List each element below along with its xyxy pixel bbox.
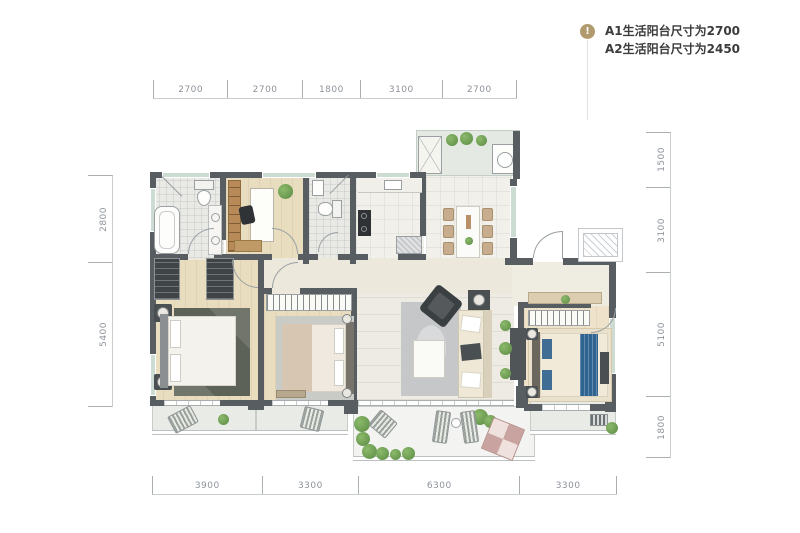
legend-line-2: A2生活阳台尺寸为2450 xyxy=(605,40,740,58)
lamp xyxy=(527,387,537,397)
sofa-pillow xyxy=(460,343,482,361)
sofa-back xyxy=(484,310,492,398)
dimension-segment: 1800 xyxy=(303,80,361,98)
floorplan-page: 27002700180031002700 3900330063003300 28… xyxy=(0,0,800,533)
window xyxy=(510,186,517,238)
dimension-label: 2700 xyxy=(178,86,203,98)
bed xyxy=(160,314,244,388)
dimension-chain-right: 1500310051001800 xyxy=(646,132,671,458)
shrub xyxy=(402,447,415,460)
bed-bench xyxy=(276,390,306,398)
shrub xyxy=(376,447,389,460)
plant xyxy=(476,135,487,146)
bed-runner xyxy=(580,334,598,396)
dimension-label: 3100 xyxy=(389,86,414,98)
dimension-chain-left: 28005400 xyxy=(88,175,113,407)
bed xyxy=(532,332,608,398)
kitchen-counter xyxy=(358,178,422,193)
dimension-segment: 6300 xyxy=(359,476,520,494)
stairwell xyxy=(578,228,623,262)
sink xyxy=(312,180,324,196)
wall-segment xyxy=(303,178,309,264)
dimension-label: 1500 xyxy=(658,147,667,172)
wall-segment xyxy=(513,131,520,179)
dining-chair xyxy=(443,242,454,255)
dresser xyxy=(600,352,609,384)
sofa-pillow xyxy=(460,371,481,389)
dimension-segment: 3100 xyxy=(646,188,670,274)
legend-line-1: A1生活阳台尺寸为2700 xyxy=(605,22,740,40)
dimension-label: 3100 xyxy=(658,218,667,243)
dining-chair xyxy=(482,242,493,255)
kitchen-sink xyxy=(384,180,402,190)
armchair-cushion xyxy=(427,292,455,320)
bathtub-inner xyxy=(159,211,175,249)
balcony-railing xyxy=(256,430,348,435)
dimension-segment: 2700 xyxy=(154,80,228,98)
entry-door-leaf xyxy=(562,231,563,259)
dimension-label: 3300 xyxy=(298,482,323,494)
lamp xyxy=(527,329,537,339)
dining-chair xyxy=(443,225,454,238)
balcony-slider-door xyxy=(542,404,590,411)
blanket xyxy=(282,324,312,392)
bathtub xyxy=(154,206,180,254)
hall-cabinet xyxy=(528,292,602,304)
plant xyxy=(460,132,473,145)
wardrobe xyxy=(528,310,590,326)
pillow xyxy=(170,354,181,382)
wall-pillar xyxy=(344,400,358,414)
burner xyxy=(361,226,367,232)
pillow-blue xyxy=(542,370,552,390)
wall-segment xyxy=(398,254,426,260)
fridge xyxy=(396,236,422,254)
dimension-label: 2800 xyxy=(100,207,109,232)
dimension-segment: 1500 xyxy=(646,133,670,188)
pillow xyxy=(170,320,181,348)
dimension-segment: 3100 xyxy=(361,80,443,98)
dimension-label: 1800 xyxy=(319,86,344,98)
plant xyxy=(499,342,512,355)
floor-plan xyxy=(150,128,623,464)
dimension-segment: 2800 xyxy=(88,176,112,263)
shrub xyxy=(390,449,401,460)
dimension-label: 1800 xyxy=(658,415,667,440)
plant xyxy=(446,134,458,146)
table-runner xyxy=(466,215,471,229)
burner xyxy=(361,213,367,219)
dimension-chain-bottom: 3900330063003300 xyxy=(152,476,617,495)
shrub xyxy=(362,444,377,459)
lamp xyxy=(342,388,352,398)
dimension-label: 5100 xyxy=(658,322,667,347)
dimension-segment: 3900 xyxy=(153,476,263,494)
dimension-segment: 3300 xyxy=(520,476,617,494)
pillow xyxy=(334,328,344,354)
dining-chair xyxy=(443,208,454,221)
dimension-label: 2700 xyxy=(467,86,492,98)
plant xyxy=(606,422,618,434)
washing-machine-drum xyxy=(497,152,513,168)
wall-segment xyxy=(298,254,318,260)
lamp xyxy=(342,314,352,324)
coffee-table xyxy=(413,340,445,378)
ac-unit xyxy=(590,414,608,426)
window xyxy=(162,172,210,178)
wall-segment xyxy=(338,254,368,260)
stairwell-hatch xyxy=(583,233,618,257)
pillow xyxy=(334,360,344,386)
balcony-cabinet xyxy=(418,136,442,174)
dimension-label: 6300 xyxy=(427,482,452,494)
wardrobe xyxy=(154,258,180,300)
dimension-segment: 5100 xyxy=(646,273,670,397)
plant xyxy=(500,320,511,331)
balcony-slider-door xyxy=(272,400,328,406)
plant xyxy=(218,414,229,425)
toilet-bowl xyxy=(318,202,333,216)
headboard xyxy=(346,322,354,394)
toilet-tank xyxy=(332,200,342,218)
dimension-segment: 3300 xyxy=(263,476,360,494)
balcony-railing xyxy=(152,430,256,435)
headboard xyxy=(160,314,168,388)
plant xyxy=(278,184,293,199)
wall-segment xyxy=(350,178,356,264)
plant xyxy=(561,295,570,304)
plant xyxy=(465,237,473,245)
wardrobe xyxy=(266,294,352,311)
patio-table xyxy=(451,418,461,428)
dimension-label: 3300 xyxy=(556,482,581,494)
dimension-segment: 1800 xyxy=(646,397,670,458)
dimension-segment: 2700 xyxy=(443,80,517,98)
dining-table xyxy=(456,206,480,258)
study-bench xyxy=(234,240,262,252)
dimension-chain-top: 27002700180031002700 xyxy=(153,80,517,99)
legend: ! A1生活阳台尺寸为2700 A2生活阳台尺寸为2450 xyxy=(580,22,740,58)
dimension-segment: 2700 xyxy=(228,80,302,98)
entry-door-arc xyxy=(533,231,563,258)
dimension-label: 3900 xyxy=(195,482,220,494)
dimension-label: 5400 xyxy=(100,322,109,347)
balcony-railing xyxy=(530,430,616,435)
wall-pillar xyxy=(248,400,264,410)
dimension-segment: 5400 xyxy=(88,263,112,407)
sofa-pillow xyxy=(460,315,482,334)
info-icon: ! xyxy=(580,24,595,39)
toilet-tank xyxy=(194,180,214,190)
wall-segment xyxy=(505,258,533,265)
wardrobe xyxy=(206,258,234,300)
pillow-blue xyxy=(542,339,552,359)
wall-segment xyxy=(258,254,264,400)
dining-chair xyxy=(482,225,493,238)
tv-feature-wall xyxy=(510,328,526,380)
lamp xyxy=(473,294,485,306)
sofa xyxy=(458,310,492,398)
stove xyxy=(358,210,371,236)
balcony-slider-door xyxy=(164,400,220,406)
dining-chair xyxy=(482,208,493,221)
sink xyxy=(211,213,220,222)
bed xyxy=(282,322,354,394)
dimension-label: 2700 xyxy=(253,86,278,98)
plant xyxy=(500,368,511,379)
balcony-slider-door xyxy=(358,400,514,406)
side-table xyxy=(468,290,490,310)
window xyxy=(262,172,316,178)
